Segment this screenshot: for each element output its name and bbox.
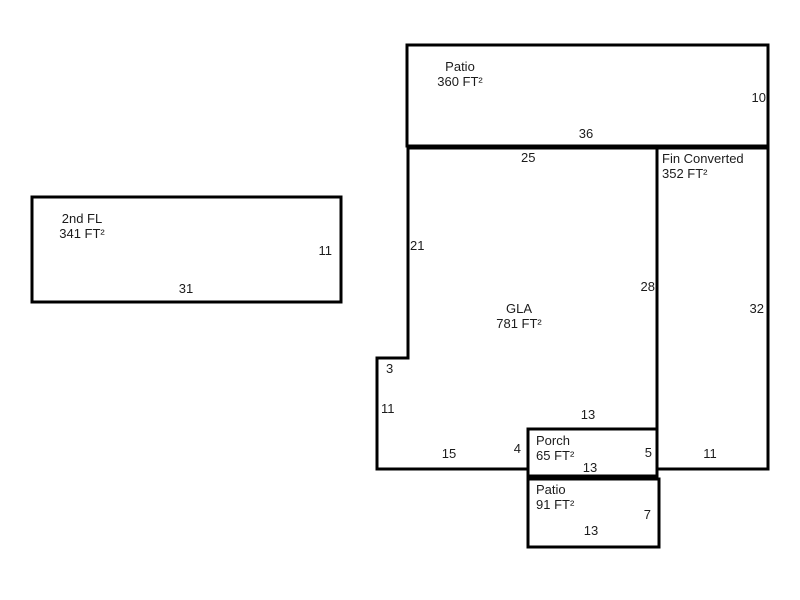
patio-top-label: Patio 360 FT² [428, 59, 492, 89]
porch-dim-top: 13 [572, 407, 604, 422]
area-size: 360 FT² [428, 74, 492, 89]
patio-bottom-dim-bottom: 13 [575, 523, 607, 538]
area-size: 341 FT² [52, 226, 112, 241]
patio-bottom-label: Patio 91 FT² [536, 482, 574, 512]
area-name: Patio [428, 59, 492, 74]
floor-plan-lines [0, 0, 800, 600]
porch-dim-right: 5 [622, 445, 652, 460]
porch-label: Porch 65 FT² [536, 433, 574, 463]
gla-dim-top: 25 [521, 150, 535, 165]
patio-top-dim-bottom: 36 [570, 126, 602, 141]
area-name: GLA [487, 301, 551, 316]
gla-dim-bottom: 15 [433, 446, 465, 461]
area-size: 91 FT² [536, 497, 574, 512]
second-fl-dim-right: 11 [302, 243, 332, 258]
fin-converted-label: Fin Converted 352 FT² [662, 151, 744, 181]
floor-plan-sketch: Patio 360 FT² 10 36 2nd FL 341 FT² 11 31… [0, 0, 800, 600]
patio-top-dim-right: 10 [736, 90, 766, 105]
gla-dim-bottom-right: 4 [491, 441, 521, 456]
area-size: 781 FT² [487, 316, 551, 331]
area-name: Porch [536, 433, 574, 448]
fin-converted-dim-bottom: 11 [694, 446, 726, 461]
second-fl-dim-bottom: 31 [170, 281, 202, 296]
porch-dim-bottom: 13 [574, 460, 606, 475]
gla-dim-right: 28 [625, 279, 655, 294]
fin-converted-dim-right: 32 [734, 301, 764, 316]
area-name: 2nd FL [52, 211, 112, 226]
area-name: Patio [536, 482, 574, 497]
gla-dim-step: 3 [386, 361, 393, 376]
area-name: Fin Converted [662, 151, 744, 166]
second-fl-label: 2nd FL 341 FT² [52, 211, 112, 241]
area-size: 65 FT² [536, 448, 574, 463]
gla-dim-left-lower: 11 [381, 401, 395, 416]
gla-label: GLA 781 FT² [487, 301, 551, 331]
area-size: 352 FT² [662, 166, 744, 181]
patio-bottom-dim-right: 7 [621, 507, 651, 522]
gla-dim-left: 21 [410, 238, 424, 253]
